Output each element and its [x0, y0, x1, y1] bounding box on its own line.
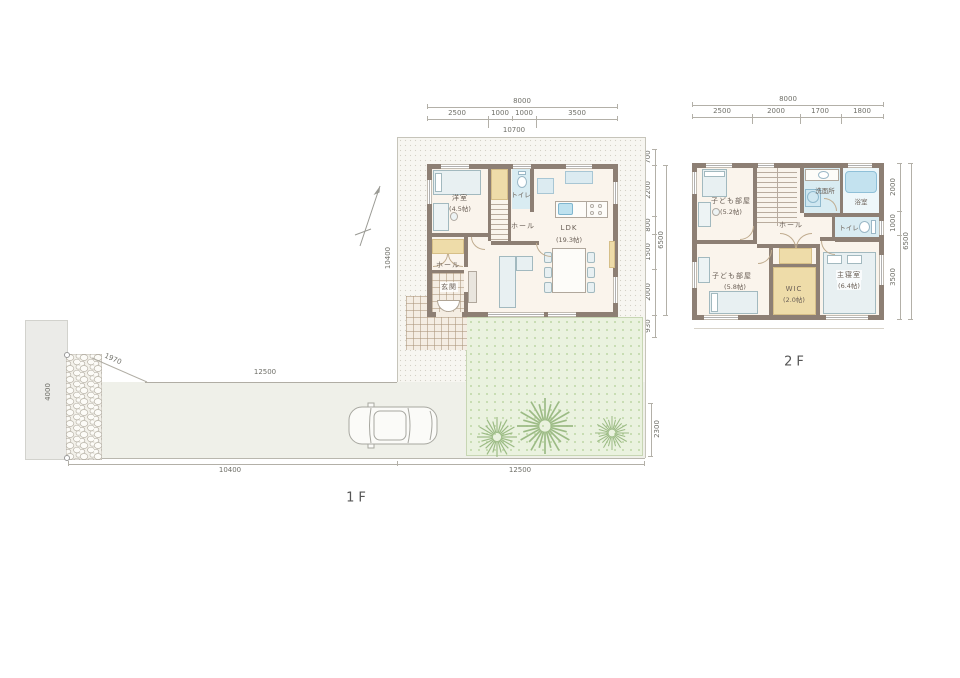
storage-niche	[609, 241, 615, 268]
dim-tick	[652, 149, 657, 150]
dim-tick	[800, 114, 801, 124]
sofa	[499, 256, 516, 308]
garden-trees	[466, 317, 645, 457]
toilet-bowl	[517, 176, 527, 188]
sofa-arm	[516, 256, 533, 271]
dim-line	[651, 403, 652, 456]
dim-tick	[663, 315, 668, 316]
dim-tick	[908, 163, 913, 164]
chair	[587, 267, 595, 278]
dim-tick	[652, 315, 657, 316]
room-label: 洋室	[452, 193, 468, 203]
dim-line	[692, 117, 884, 118]
site-fence-line	[145, 382, 397, 383]
dim-label: 12500	[254, 368, 276, 376]
window	[879, 221, 884, 235]
room-size-label: (5.2帖)	[720, 206, 742, 216]
dim-tick	[617, 104, 618, 109]
dim-line	[655, 149, 656, 337]
roof-outline	[694, 328, 884, 329]
bed-pillow	[847, 255, 862, 264]
room-size-label: (19.3帖)	[556, 234, 582, 244]
dim-tick	[488, 116, 489, 128]
dim-label: 3500	[889, 268, 897, 286]
window	[441, 164, 469, 169]
dim-tick	[663, 165, 668, 166]
dim-label: 2500	[713, 107, 731, 115]
window	[548, 312, 576, 317]
dim-label: 2500	[448, 109, 466, 117]
car-top-view	[346, 399, 440, 451]
window	[704, 315, 738, 320]
desk	[698, 202, 711, 227]
room-label: 子ども部屋	[712, 271, 752, 281]
entrance-opening	[436, 312, 462, 317]
room-label: ホール	[511, 221, 535, 231]
dim-tick	[908, 319, 913, 320]
wall	[464, 292, 468, 317]
wall	[432, 270, 464, 273]
porch-tiles	[427, 317, 467, 350]
dim-tick	[648, 403, 653, 404]
dim-label: 1000	[491, 109, 509, 117]
room-size-label: (6.4帖)	[837, 280, 861, 290]
room-label: 主寝室	[836, 270, 862, 280]
window	[879, 255, 884, 285]
window	[848, 163, 872, 168]
dim-tick	[883, 114, 884, 119]
room-label: 子ども部屋	[711, 196, 751, 206]
chair	[587, 282, 595, 293]
window	[427, 180, 432, 204]
room-label: WIC	[786, 285, 803, 293]
dim-tick	[752, 114, 753, 124]
dim-label: 2000	[767, 107, 785, 115]
dim-tick	[652, 216, 657, 217]
stair-rail-line	[777, 168, 778, 226]
dim-tick	[652, 337, 657, 338]
dim-line	[900, 163, 901, 320]
dim-line	[427, 119, 618, 120]
counter-divider	[586, 201, 587, 218]
dim-label: 1700	[811, 107, 829, 115]
dim-label: 10400	[219, 466, 241, 474]
window	[566, 164, 592, 169]
dim-label: 1000	[515, 109, 533, 117]
toilet-tank	[518, 171, 526, 175]
toilet-bowl	[859, 221, 870, 233]
room-label: 浴室	[855, 196, 868, 206]
dim-label: 6500	[657, 231, 665, 249]
window	[692, 262, 697, 288]
chair	[544, 267, 552, 278]
room-size-label: (2.0帖)	[783, 294, 805, 304]
kitchen-sink	[558, 203, 573, 215]
hall-closet	[779, 248, 812, 264]
shoe-closet	[432, 239, 464, 254]
room-label: トイレ	[839, 222, 859, 232]
sink	[818, 171, 829, 179]
dim-label: 10700	[503, 126, 525, 134]
bed-pillow	[711, 293, 718, 312]
dim-tick	[648, 456, 653, 457]
dim-label: 12500	[509, 466, 531, 474]
dim-line	[427, 107, 618, 108]
dim-tick	[692, 114, 693, 119]
staircase	[491, 200, 508, 241]
dim-tick	[427, 116, 428, 121]
stove-burner	[598, 204, 602, 208]
dim-label: 2000	[889, 178, 897, 196]
dim-line	[666, 165, 667, 315]
kitchen-cupboard	[565, 171, 593, 184]
dim-label: 6500	[902, 232, 910, 250]
wall	[816, 244, 820, 315]
room-label: トイレ	[511, 189, 531, 199]
dim-label: 1000	[889, 214, 897, 232]
dim-tick	[897, 211, 902, 212]
dim-tick	[897, 319, 902, 320]
dim-tick	[512, 116, 513, 121]
tv-board	[468, 271, 477, 303]
wall	[832, 217, 835, 238]
window	[613, 277, 618, 303]
floorplan-sheet: 8000 2500 1000 1000 3500 10700 700 2200 …	[0, 0, 960, 678]
desk	[433, 203, 449, 231]
room-label: LDK	[561, 224, 578, 232]
wall	[530, 169, 534, 212]
stove-burner	[598, 211, 602, 215]
dim-tick	[841, 114, 842, 124]
survey-point	[64, 455, 70, 461]
bed-pillow	[435, 173, 442, 192]
floor2-title: 2F	[784, 355, 808, 370]
stair-landing-closet	[491, 169, 508, 200]
dim-tick	[644, 461, 645, 466]
dim-tick	[617, 116, 618, 121]
dim-tick	[68, 461, 69, 466]
dim-tick	[427, 104, 428, 109]
room-label: 玄関	[440, 282, 458, 292]
site-boundary-right	[645, 137, 646, 458]
dim-tick	[652, 269, 657, 270]
chair	[712, 208, 720, 216]
wall	[697, 240, 753, 244]
dim-tick	[883, 102, 884, 107]
room-size-label: (5.8帖)	[724, 281, 746, 291]
dining-table	[552, 248, 586, 293]
dim-line	[692, 105, 884, 106]
window	[706, 163, 732, 168]
window	[692, 172, 697, 194]
stove-burner	[590, 211, 594, 215]
dim-line	[68, 464, 645, 465]
chair	[544, 282, 552, 293]
bathtub	[845, 171, 877, 193]
dim-label: 4000	[44, 383, 52, 401]
room-size-label: (4.5帖)	[449, 203, 471, 213]
wall	[491, 241, 539, 245]
room-label: ホール	[779, 220, 803, 230]
desk	[698, 257, 710, 283]
dim-line	[911, 163, 912, 320]
window	[613, 182, 618, 204]
chair	[450, 212, 458, 221]
window	[826, 315, 868, 320]
room-label: ホール	[436, 260, 460, 270]
dim-label: 2300	[653, 420, 661, 438]
north-arrow-icon	[350, 178, 390, 253]
wall	[464, 237, 468, 267]
window	[488, 312, 544, 317]
refrigerator	[537, 178, 554, 194]
chair	[587, 252, 595, 263]
survey-point	[64, 352, 70, 358]
porch-tiles	[406, 296, 427, 350]
bed-pillow	[827, 255, 842, 264]
room-label: 洗面所	[815, 185, 835, 195]
dim-tick	[652, 165, 657, 166]
dim-label: 8000	[779, 95, 797, 103]
dim-tick	[397, 461, 398, 466]
stove-burner	[590, 204, 594, 208]
toilet-tank	[871, 220, 876, 234]
floor1-title: 1F	[346, 491, 370, 506]
dim-tick	[897, 163, 902, 164]
site-boundary-bottom	[68, 458, 645, 459]
dim-label: 1800	[853, 107, 871, 115]
window	[513, 164, 531, 169]
dim-tick	[692, 102, 693, 107]
dim-label: 3500	[568, 109, 586, 117]
window	[758, 163, 774, 168]
bed-pillow	[704, 171, 725, 177]
dim-label: 8000	[513, 97, 531, 105]
dim-tick	[536, 116, 537, 128]
